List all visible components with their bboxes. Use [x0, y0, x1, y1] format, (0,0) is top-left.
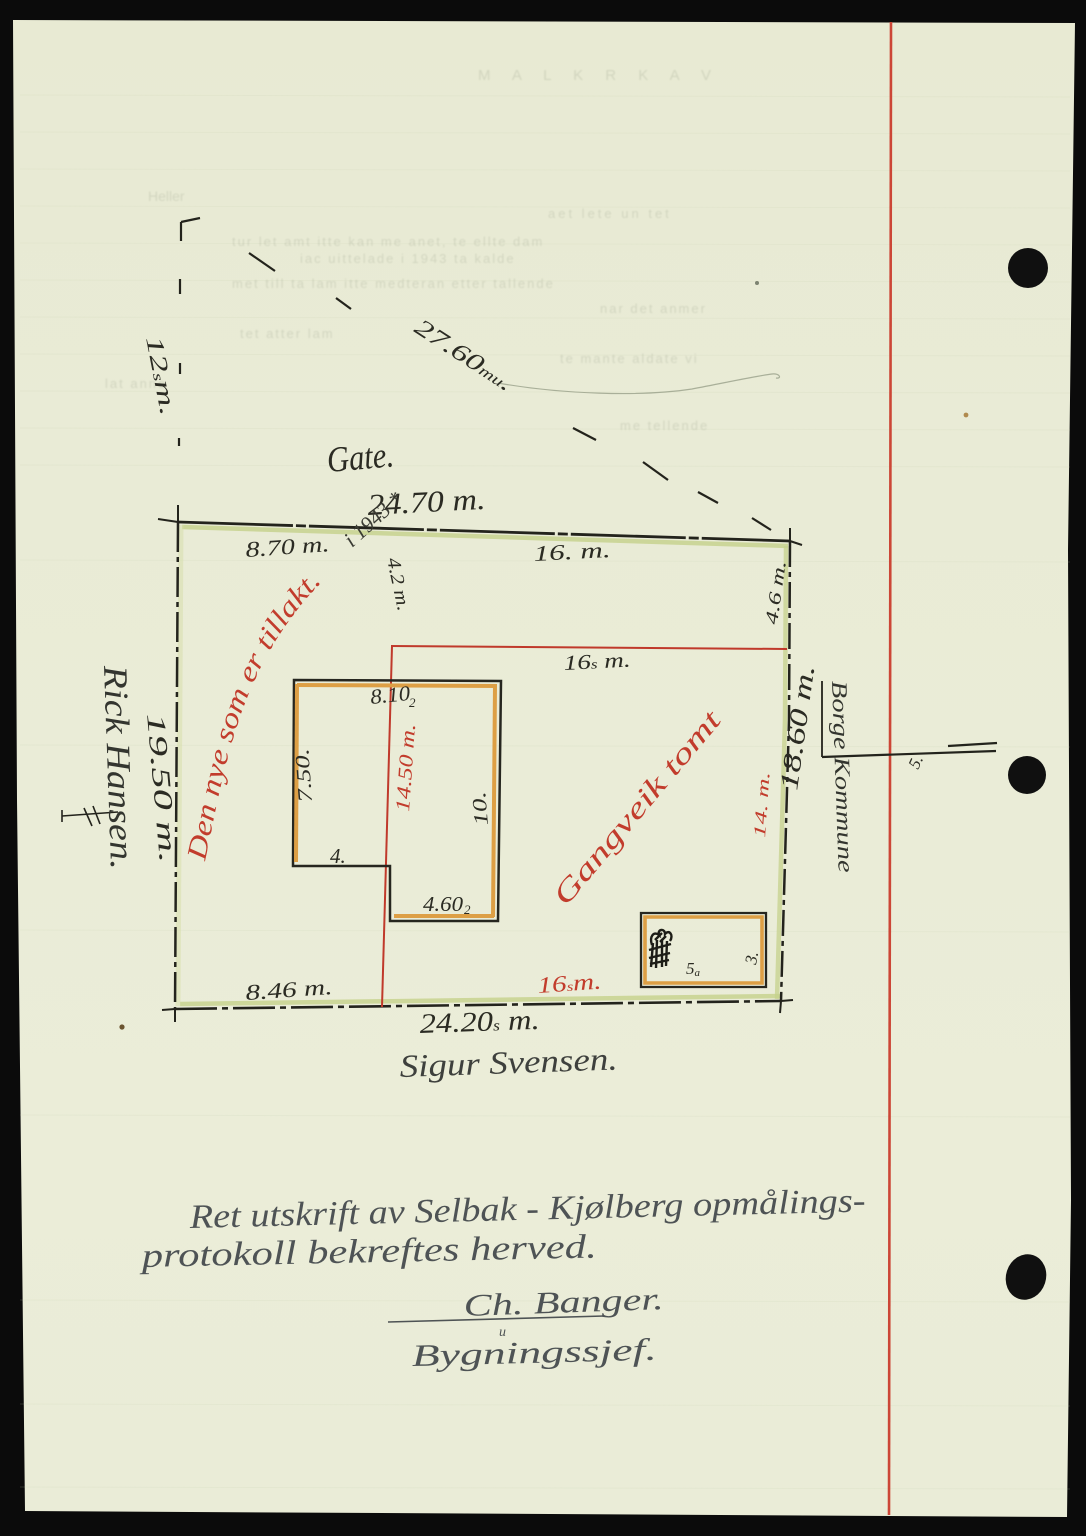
svg-text:te mante aldate vi: te mante aldate vi [560, 351, 699, 366]
svg-text:Sigur Svensen.: Sigur Svensen. [399, 1040, 618, 1084]
svg-text:Gate.: Gate. [325, 434, 395, 480]
svg-text:10.: 10. [468, 791, 493, 827]
svg-text:24.20s m.: 24.20s m. [419, 1005, 540, 1040]
svg-text:16s m.: 16s m. [563, 648, 631, 675]
svg-text:iac uittelade i 1943 ta kalde: iac uittelade i 1943 ta kalde [300, 251, 516, 266]
svg-text:2: 2 [409, 695, 416, 710]
svg-text:met till ta lam itte medteran: met till ta lam itte medteran etter tall… [232, 276, 555, 291]
svg-text:Rick Hansen.: Rick Hansen. [96, 664, 140, 870]
svg-text:aet lete un tet: aet lete un tet [548, 206, 672, 221]
svg-text:4.: 4. [330, 844, 346, 868]
svg-text:2: 2 [464, 902, 471, 917]
svg-text:16. m.: 16. m. [533, 537, 611, 566]
svg-text:7.50.: 7.50. [291, 748, 317, 803]
svg-text:Bygningssjef.: Bygningssjef. [411, 1332, 657, 1373]
svg-text:8.10: 8.10 [369, 681, 412, 709]
svg-text:me tellende: me tellende [620, 418, 709, 433]
svg-text:4.60: 4.60 [423, 892, 464, 916]
svg-text:Heller: Heller [148, 188, 185, 204]
svg-text:M A L K R K A V: M A L K R K A V [478, 67, 720, 84]
svg-text:tur let amt itte kan me anet,: tur let amt itte kan me anet, te ellte d… [232, 234, 544, 249]
svg-text:tet atter lam: tet atter lam [240, 326, 335, 341]
svg-text:nar det anmer: nar det anmer [600, 301, 707, 316]
